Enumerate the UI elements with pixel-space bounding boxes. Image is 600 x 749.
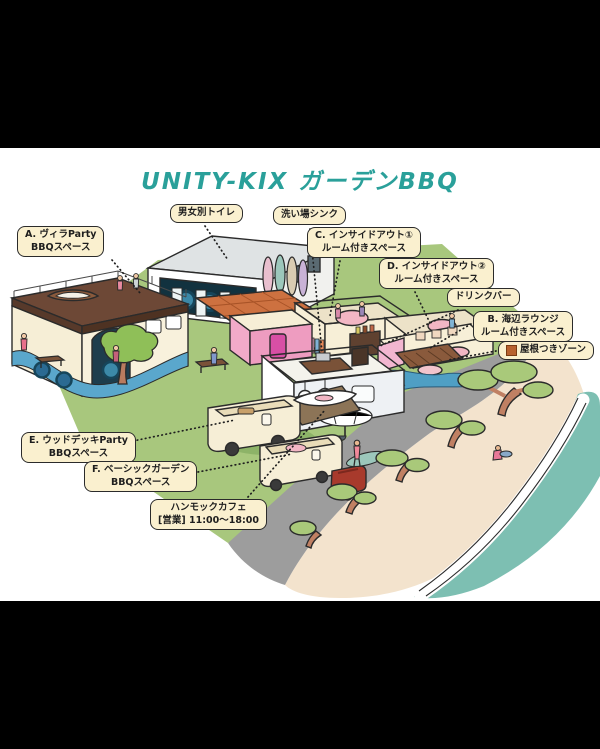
- callout-roofed-zone: 屋根つきゾーン: [498, 341, 594, 360]
- callout-sink: 洗い場シンク: [273, 206, 346, 225]
- callout-inside-out-1: C. インサイドアウト① ルーム付きスペース: [307, 227, 421, 258]
- pink-room: [230, 310, 312, 365]
- callout-hammock-cafe: ハンモックカフェ [営業] 11:00〜18:00: [150, 499, 267, 530]
- letterboxed-page: { "title": "UNITY-KIX ガーデンBBQ", "callout…: [0, 0, 600, 749]
- callout-inside-out-2: D. インサイドアウト② ルーム付きスペース: [379, 258, 494, 289]
- illustration-canvas: UNITY-KIX ガーデンBBQ: [0, 148, 600, 601]
- callout-wood-deck: E. ウッドデッキParty BBQスペース: [21, 432, 136, 463]
- roofed-zone-swatch-icon: [506, 345, 517, 356]
- callout-drink-bar: ドリンクバー: [447, 288, 520, 307]
- sink: [316, 353, 330, 361]
- callout-villa-party: A. ヴィラParty BBQスペース: [17, 226, 104, 257]
- callout-basic-garden: F. ベーシックガーデン BBQスペース: [84, 461, 197, 492]
- callout-toilet: 男女別トイレ: [170, 204, 243, 223]
- callout-beach-lounge: B. 海辺ラウンジ ルーム付きスペース: [473, 311, 573, 342]
